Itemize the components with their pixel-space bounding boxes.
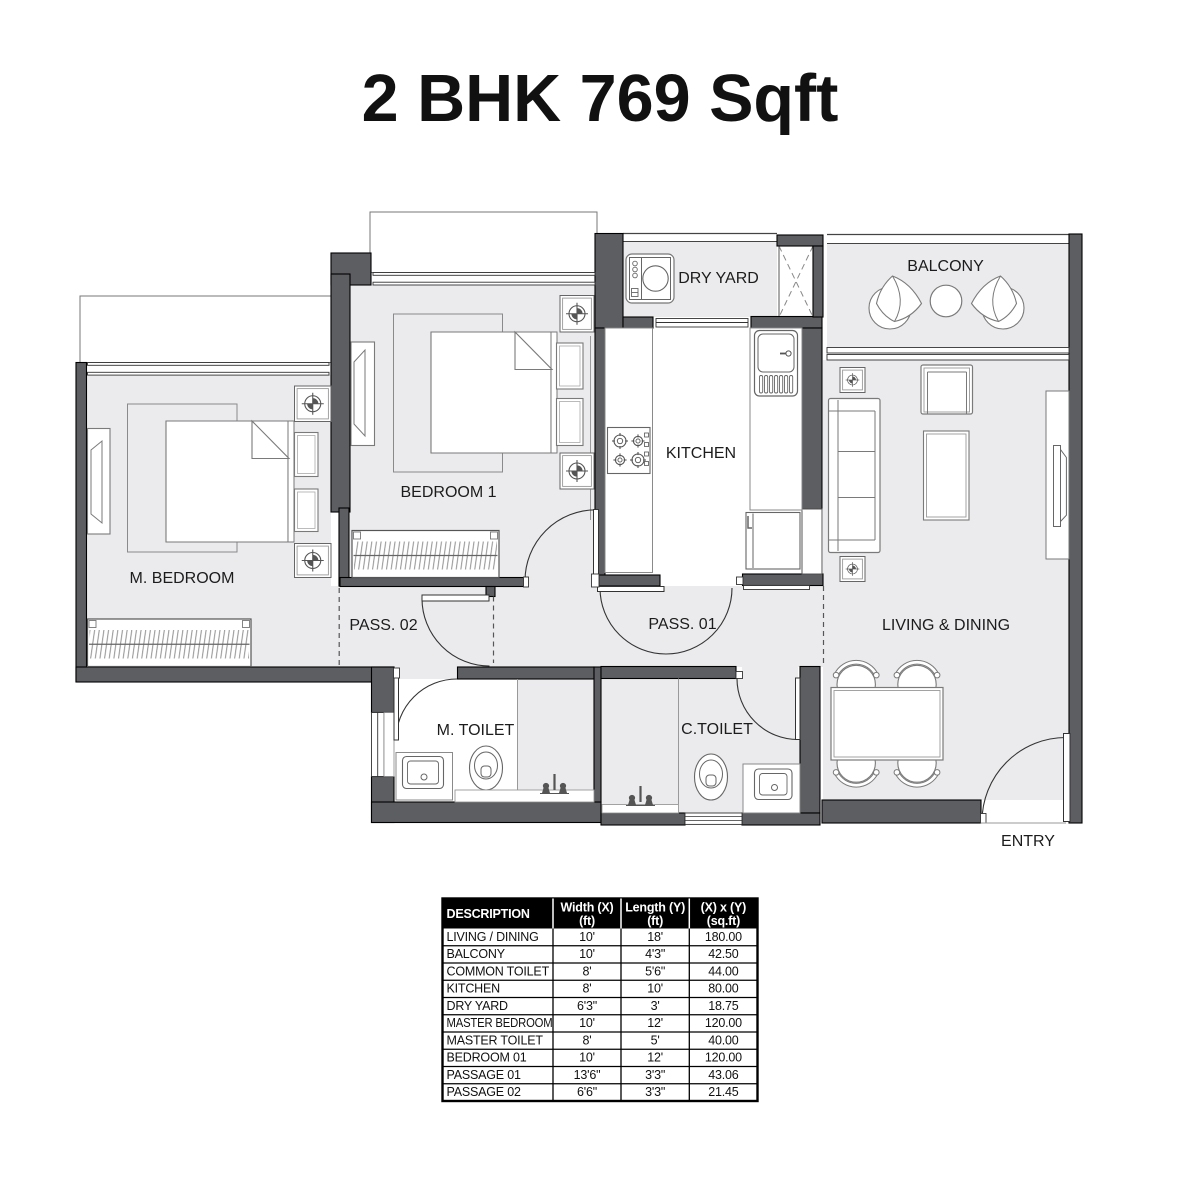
svg-text:3'3": 3'3" <box>645 1068 665 1082</box>
svg-text:(sq.ft): (sq.ft) <box>707 914 740 928</box>
svg-text:PASS. 01: PASS. 01 <box>648 616 716 633</box>
svg-text:(ft): (ft) <box>579 914 595 928</box>
svg-text:120.00: 120.00 <box>705 1016 742 1030</box>
svg-text:18.75: 18.75 <box>708 999 739 1013</box>
svg-text:Length (Y): Length (Y) <box>625 901 685 915</box>
svg-text:3': 3' <box>651 999 660 1013</box>
svg-text:BALCONY: BALCONY <box>447 947 506 961</box>
svg-text:10': 10' <box>579 930 595 944</box>
svg-text:10': 10' <box>579 947 595 961</box>
svg-text:(X) x (Y): (X) x (Y) <box>701 901 746 915</box>
svg-text:18': 18' <box>647 930 663 944</box>
svg-text:42.50: 42.50 <box>708 947 739 961</box>
svg-text:21.45: 21.45 <box>708 1085 739 1099</box>
svg-text:Width (X): Width (X) <box>561 901 614 915</box>
svg-text:KITCHEN: KITCHEN <box>666 445 736 462</box>
svg-text:2 BHK 769 Sqft: 2 BHK 769 Sqft <box>362 62 839 136</box>
svg-text:DRY YARD: DRY YARD <box>447 999 509 1013</box>
svg-text:6'6": 6'6" <box>577 1085 597 1099</box>
svg-text:8': 8' <box>583 982 592 996</box>
svg-text:COMMON TOILET: COMMON TOILET <box>447 964 550 978</box>
svg-text:C.TOILET: C.TOILET <box>681 721 753 738</box>
svg-text:4'3": 4'3" <box>645 947 665 961</box>
svg-text:DRY YARD: DRY YARD <box>678 270 759 287</box>
svg-text:10': 10' <box>579 1016 595 1030</box>
svg-text:8': 8' <box>583 1033 592 1047</box>
svg-text:BEDROOM 1: BEDROOM 1 <box>400 484 496 501</box>
svg-text:ENTRY: ENTRY <box>1001 833 1055 850</box>
svg-text:12': 12' <box>647 1016 663 1030</box>
svg-text:44.00: 44.00 <box>708 964 739 978</box>
svg-text:180.00: 180.00 <box>705 930 742 944</box>
svg-text:43.06: 43.06 <box>708 1068 739 1082</box>
svg-text:DESCRIPTION: DESCRIPTION <box>447 907 530 921</box>
svg-text:10': 10' <box>647 982 663 996</box>
svg-text:PASSAGE 01: PASSAGE 01 <box>447 1068 521 1082</box>
svg-text:PASS. 02: PASS. 02 <box>349 617 417 634</box>
svg-text:80.00: 80.00 <box>708 982 739 996</box>
svg-text:6'3": 6'3" <box>577 999 597 1013</box>
svg-text:KITCHEN: KITCHEN <box>447 982 501 996</box>
svg-text:BALCONY: BALCONY <box>907 258 984 275</box>
svg-text:LIVING / DINING: LIVING / DINING <box>447 930 539 944</box>
svg-text:M. BEDROOM: M. BEDROOM <box>130 570 235 587</box>
svg-text:40.00: 40.00 <box>708 1033 739 1047</box>
svg-text:3'3": 3'3" <box>645 1085 665 1099</box>
svg-text:5'6": 5'6" <box>645 964 665 978</box>
svg-text:8': 8' <box>583 964 592 978</box>
svg-text:MASTER TOILET: MASTER TOILET <box>447 1033 544 1047</box>
svg-text:12': 12' <box>647 1051 663 1065</box>
svg-text:(ft): (ft) <box>647 914 663 928</box>
svg-text:BEDROOM 01: BEDROOM 01 <box>447 1051 527 1065</box>
svg-text:10': 10' <box>579 1051 595 1065</box>
svg-text:120.00: 120.00 <box>705 1051 742 1065</box>
svg-text:PASSAGE 02: PASSAGE 02 <box>447 1085 521 1099</box>
svg-text:MASTER BEDROOM: MASTER BEDROOM <box>447 1016 553 1030</box>
svg-text:LIVING & DINING: LIVING & DINING <box>882 617 1010 634</box>
svg-text:M. TOILET: M. TOILET <box>437 722 515 739</box>
svg-text:13'6": 13'6" <box>574 1068 601 1082</box>
svg-text:5': 5' <box>651 1033 660 1047</box>
